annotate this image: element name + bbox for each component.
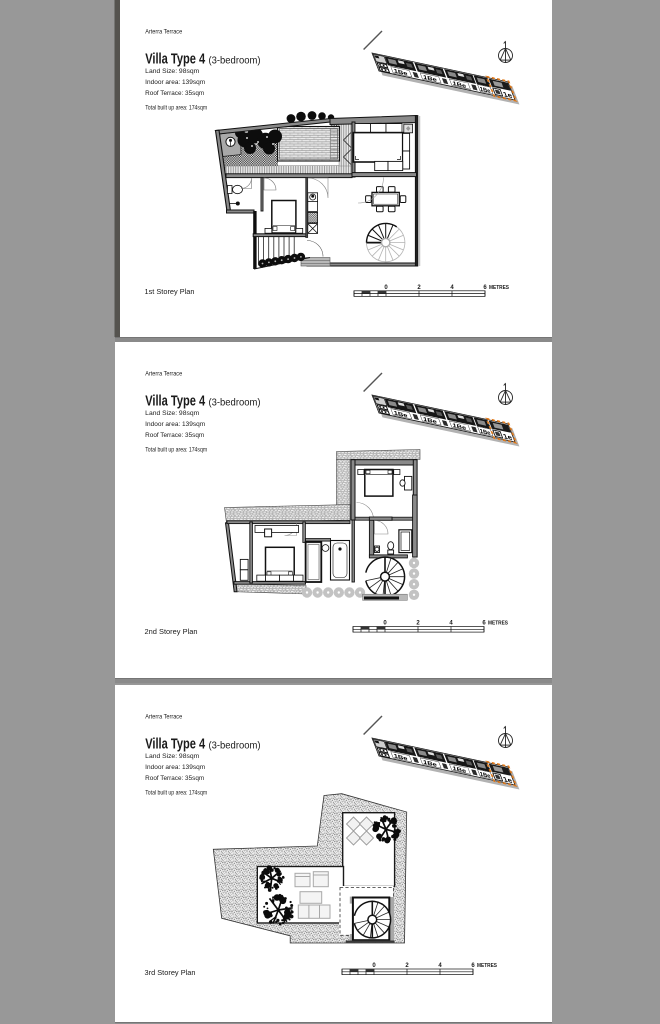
- svg-text:Villa Type 4: Villa Type 4: [145, 736, 205, 753]
- svg-text:Indoor area: 139sqm: Indoor area: 139sqm: [145, 422, 205, 428]
- svg-text:(3-bedroom): (3-bedroom): [209, 398, 261, 409]
- svg-text:Total built up area: 174sqm: Total built up area: 174sqm: [145, 448, 207, 454]
- svg-text:Indoor area: 139sqm: Indoor area: 139sqm: [145, 765, 205, 771]
- svg-text:Total built up area: 174sqm: Total built up area: 174sqm: [145, 791, 207, 797]
- svg-text:Arterra Terrace: Arterra Terrace: [145, 371, 182, 378]
- svg-text:METRES: METRES: [489, 285, 509, 291]
- svg-text:Land Size: 98sqm: Land Size: 98sqm: [145, 69, 199, 75]
- svg-text:(3-bedroom): (3-bedroom): [209, 741, 261, 752]
- svg-text:Roof Terrace: 35sqm: Roof Terrace: 35sqm: [145, 433, 204, 439]
- svg-text:Arterra Terrace: Arterra Terrace: [145, 29, 182, 36]
- svg-text:METRES: METRES: [488, 621, 508, 627]
- svg-text:Land Size: 98sqm: Land Size: 98sqm: [145, 754, 199, 760]
- svg-text:2nd Storey Plan: 2nd Storey Plan: [145, 627, 198, 636]
- svg-text:3rd Storey Plan: 3rd Storey Plan: [145, 968, 196, 977]
- svg-text:(3-bedroom): (3-bedroom): [209, 56, 261, 67]
- svg-text:Indoor area: 139sqm: Indoor area: 139sqm: [145, 80, 205, 86]
- svg-text:Total built up area: 174sqm: Total built up area: 174sqm: [145, 106, 207, 112]
- svg-text:Arterra Terrace: Arterra Terrace: [145, 714, 182, 721]
- svg-text:1st Storey Plan: 1st Storey Plan: [145, 287, 195, 296]
- svg-text:Roof Terrace: 35sqm: Roof Terrace: 35sqm: [145, 91, 204, 97]
- svg-text:Villa Type 4: Villa Type 4: [145, 393, 205, 410]
- svg-text:Villa Type 4: Villa Type 4: [145, 51, 205, 68]
- svg-text:Land Size: 98sqm: Land Size: 98sqm: [145, 411, 199, 417]
- svg-text:METRES: METRES: [477, 963, 497, 969]
- svg-text:Roof Terrace: 35sqm: Roof Terrace: 35sqm: [145, 776, 204, 782]
